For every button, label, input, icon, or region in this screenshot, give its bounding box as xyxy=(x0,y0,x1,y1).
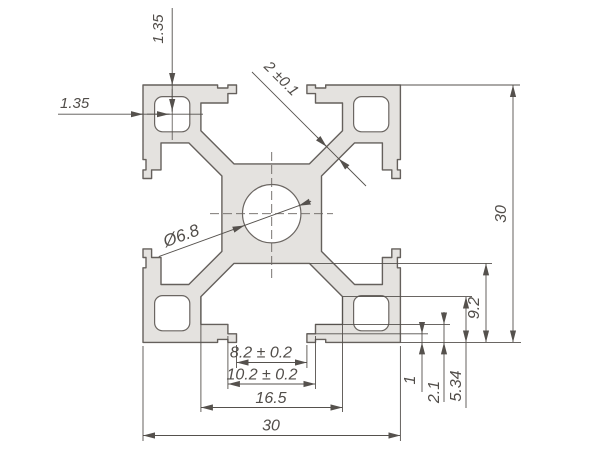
dim-cavity-width: 16.5 xyxy=(255,390,286,407)
dim-corner-hole-offset-left: 1.35 xyxy=(60,95,90,112)
dim-center-bore: Ø6.8 xyxy=(160,220,203,251)
profile-drawing-svg: 8.2 ± 0.2 10.2 ± 0.2 16.5 30 1 2.1 5.34 … xyxy=(0,0,600,450)
dim-corner-hole-offset-top: 1.35 xyxy=(150,14,167,44)
dim-slot-step: 10.2 ± 0.2 xyxy=(226,367,297,384)
dim-lip-depth: 1 xyxy=(402,376,419,385)
dim-wall-depth: 5.34 xyxy=(448,370,465,401)
dim-slot-opening: 8.2 ± 0.2 xyxy=(230,345,292,362)
corner-hole-bottom-left xyxy=(155,296,190,331)
corner-hole-top-right xyxy=(354,97,389,132)
dim-overall-width: 30 xyxy=(262,418,280,435)
corner-hole-bottom-right xyxy=(354,296,389,331)
dim-step-depth: 2.1 xyxy=(426,381,443,404)
dim-web-thickness: 2 ±0.1 xyxy=(260,57,302,99)
technical-drawing-canvas: 8.2 ± 0.2 10.2 ± 0.2 16.5 30 1 2.1 5.34 … xyxy=(0,0,600,450)
dim-overall-height: 30 xyxy=(493,205,510,223)
dim-cavity-depth: 9.2 xyxy=(466,297,483,319)
